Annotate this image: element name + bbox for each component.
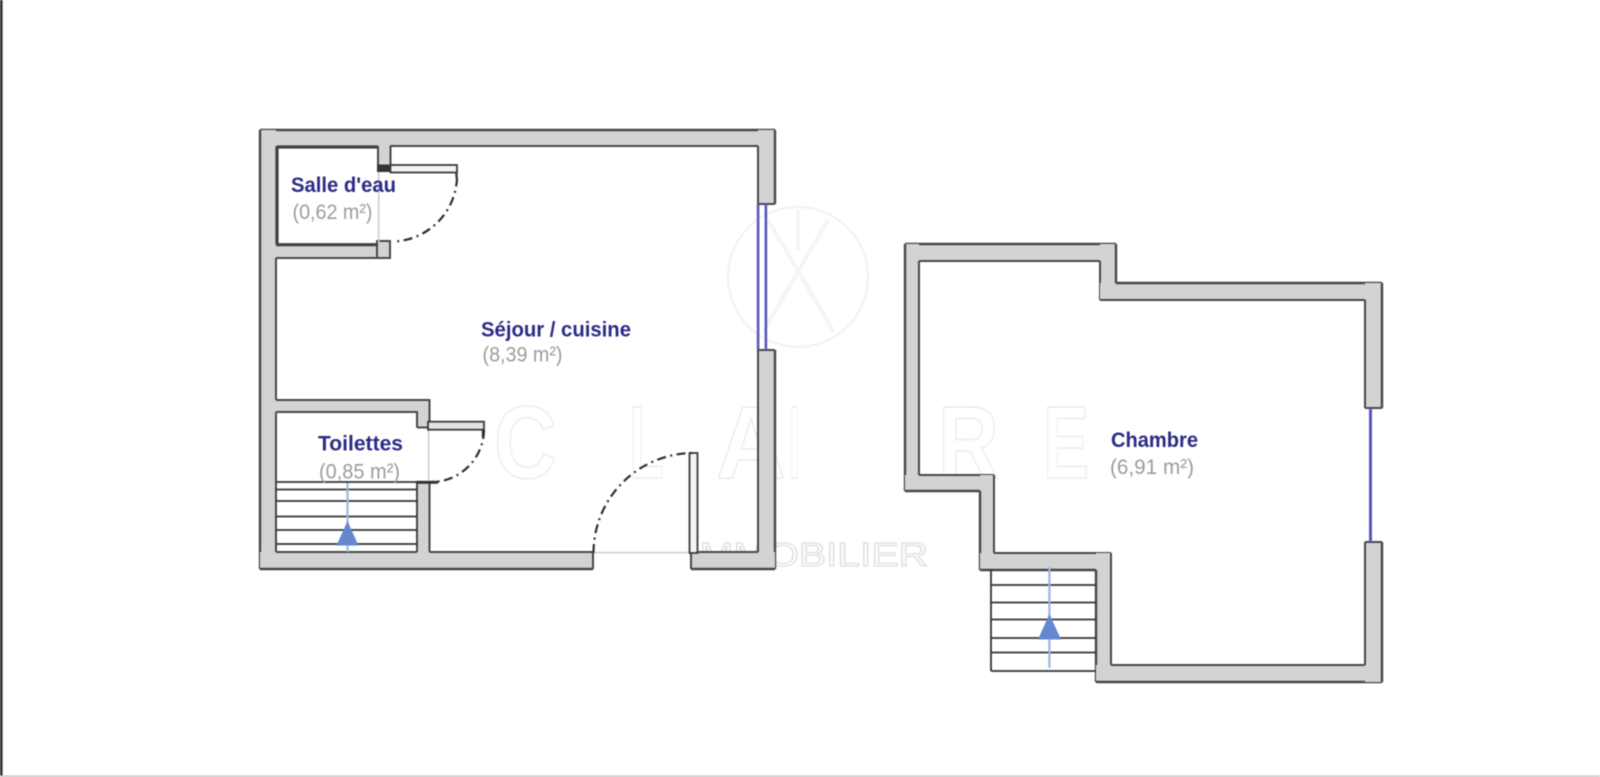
svg-text:Toilettes: Toilettes: [318, 432, 403, 456]
svg-text:(0,85 m²): (0,85 m²): [319, 461, 400, 484]
svg-text:(0,62 m²): (0,62 m²): [293, 201, 373, 224]
svg-text:(6,91 m²): (6,91 m²): [1110, 456, 1194, 479]
svg-text:L: L: [629, 385, 664, 500]
svg-text:C: C: [494, 385, 557, 500]
svg-text:I: I: [789, 385, 800, 500]
svg-text:(8,39 m²): (8,39 m²): [483, 344, 563, 367]
svg-text:Salle d'eau: Salle d'eau: [291, 173, 396, 197]
svg-text:Chambre: Chambre: [1111, 428, 1198, 452]
svg-text:E: E: [1043, 385, 1089, 500]
svg-text:Séjour / cuisine: Séjour / cuisine: [481, 318, 631, 342]
